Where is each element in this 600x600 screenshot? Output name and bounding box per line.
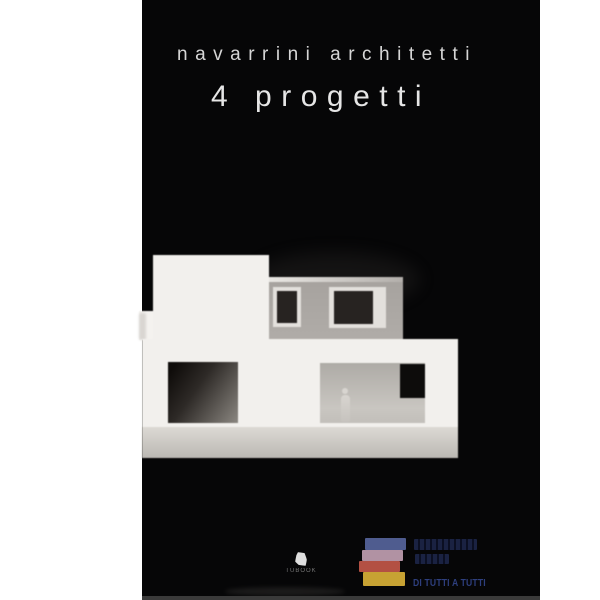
book-spine-red-icon bbox=[359, 561, 400, 572]
model-ground-plane bbox=[142, 427, 458, 458]
publisher-wordmark-line2 bbox=[415, 554, 449, 564]
book-spine-mauve-icon bbox=[362, 550, 403, 561]
model-window-large-pane bbox=[334, 291, 373, 324]
page: navarrini architetti 4 progetti TUBOOK D… bbox=[0, 0, 600, 600]
imprint-label: TUBOOK bbox=[279, 568, 323, 574]
human-figure-silhouette bbox=[338, 388, 352, 423]
figure-body bbox=[341, 395, 350, 422]
photo-edge-seam bbox=[139, 313, 146, 340]
book-spine-yellow-icon bbox=[363, 572, 405, 586]
model-dark-door bbox=[400, 364, 425, 398]
architectural-model-photo bbox=[0, 0, 600, 600]
book-spine-blue-icon bbox=[365, 538, 406, 550]
imprint-bird-icon bbox=[295, 552, 307, 566]
model-left-tower bbox=[153, 255, 269, 340]
imprint-logo: TUBOOK bbox=[279, 552, 323, 574]
figure-head bbox=[342, 388, 348, 394]
model-window-small-pane bbox=[277, 291, 297, 323]
cover-bottom-edge bbox=[142, 596, 540, 600]
cover-bottom-reflection bbox=[225, 587, 345, 596]
publisher-slogan: DI TUTTI A TUTTI bbox=[413, 578, 486, 589]
model-dark-window bbox=[168, 362, 238, 423]
publisher-wordmark-line1 bbox=[414, 539, 477, 550]
